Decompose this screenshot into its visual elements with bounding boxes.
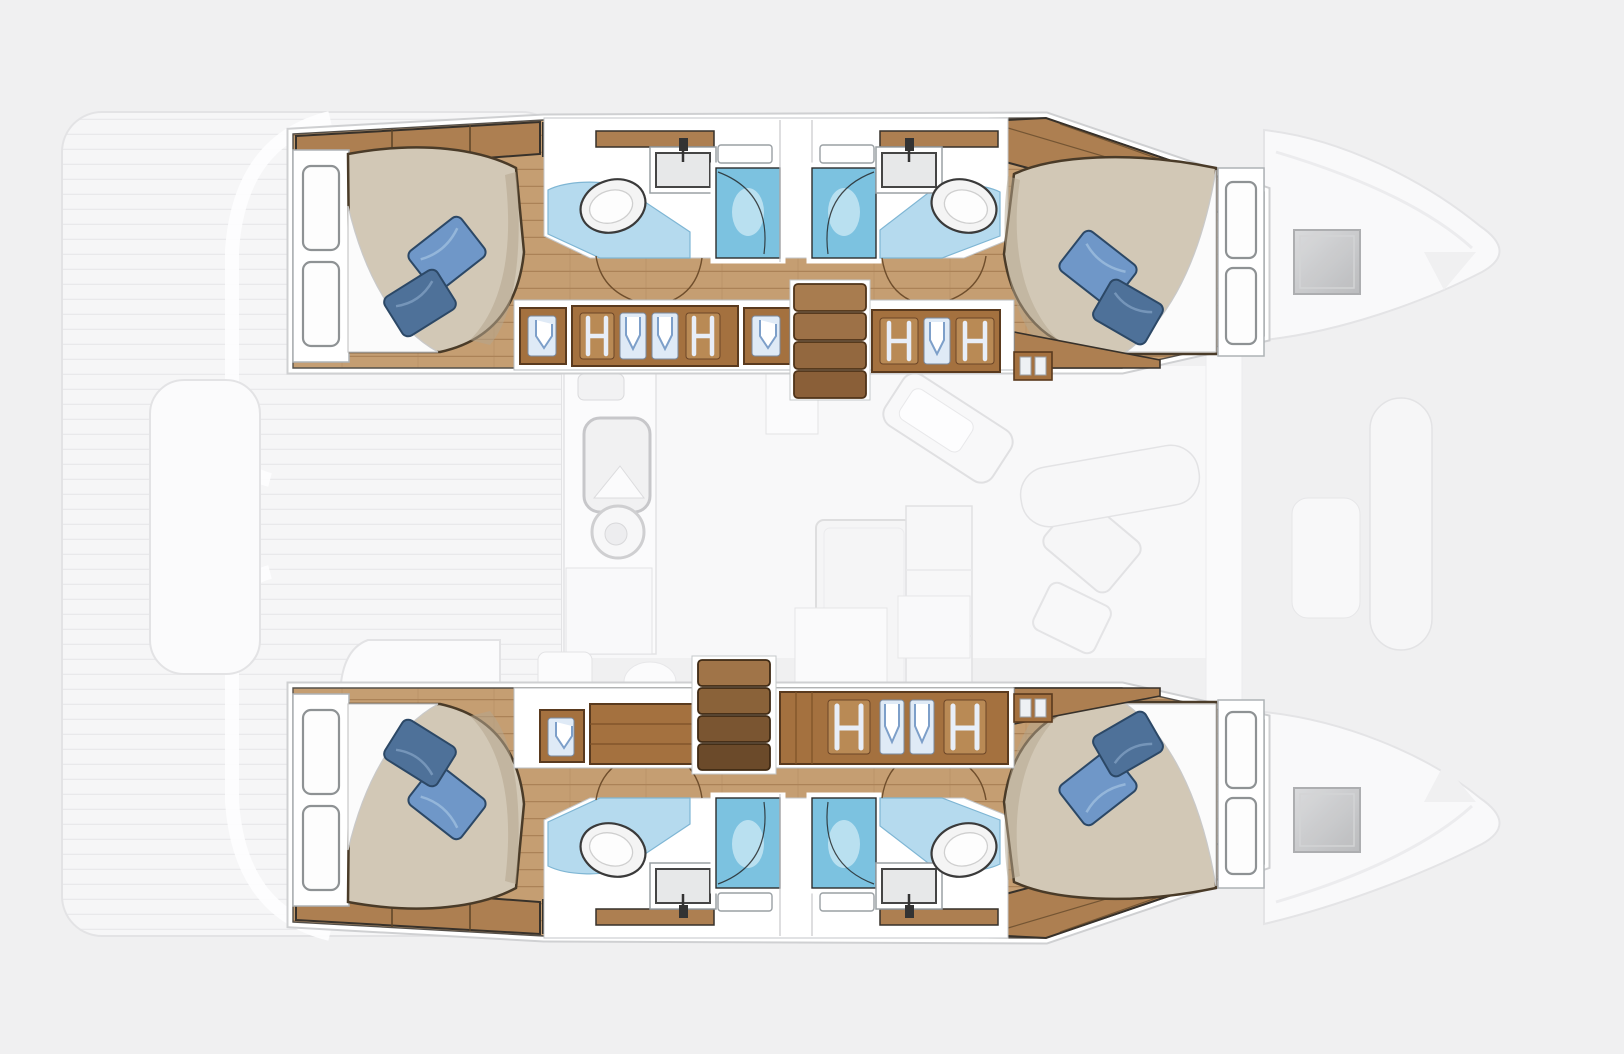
faded-cabinet xyxy=(898,596,970,658)
wardrobe-locker-bank xyxy=(572,306,738,366)
hanger-panel xyxy=(580,313,614,359)
helm-console xyxy=(1370,398,1432,650)
tender-platform xyxy=(150,380,260,674)
towel-panel xyxy=(924,318,950,364)
companionway-stairs xyxy=(790,280,870,400)
wardrobe-locker-bank xyxy=(872,310,1000,372)
galley xyxy=(564,368,656,654)
hanger-panel xyxy=(686,313,720,359)
stair-step xyxy=(698,688,770,714)
saloon-front-wall xyxy=(1206,342,1242,714)
stair-step xyxy=(698,660,770,686)
stair-step xyxy=(794,371,866,398)
floorplan-canvas xyxy=(0,0,1624,1054)
wardrobe-locker xyxy=(540,710,584,762)
galley-appliance xyxy=(578,374,624,400)
stair-step xyxy=(698,744,770,770)
wardrobe-counter xyxy=(590,704,696,764)
hanger-panel xyxy=(880,318,918,364)
hanger-panel xyxy=(944,700,986,754)
bow-deck-hatch xyxy=(1294,788,1360,852)
wardrobe-locker xyxy=(744,308,790,364)
faded-cabinet xyxy=(795,608,887,684)
small-window-locker xyxy=(1014,352,1052,380)
stair-step xyxy=(794,284,866,311)
small-window-locker xyxy=(1014,694,1052,722)
companionway-stairs xyxy=(692,656,776,774)
hanger-panel xyxy=(956,318,994,364)
bow-starboard xyxy=(1264,130,1500,340)
nav-seat xyxy=(1292,498,1360,618)
galley-lower-cabinet xyxy=(566,568,652,654)
stair-step xyxy=(794,342,866,369)
wardrobe-locker xyxy=(520,308,566,364)
wardrobe-locker-bank xyxy=(780,692,1008,764)
bow-port xyxy=(1264,712,1500,924)
hanger-panel xyxy=(828,700,870,754)
stair-step xyxy=(698,716,770,742)
stair-step xyxy=(794,313,866,340)
catamaran-floorplan xyxy=(0,0,1624,1054)
galley-stove-burner xyxy=(605,523,627,545)
